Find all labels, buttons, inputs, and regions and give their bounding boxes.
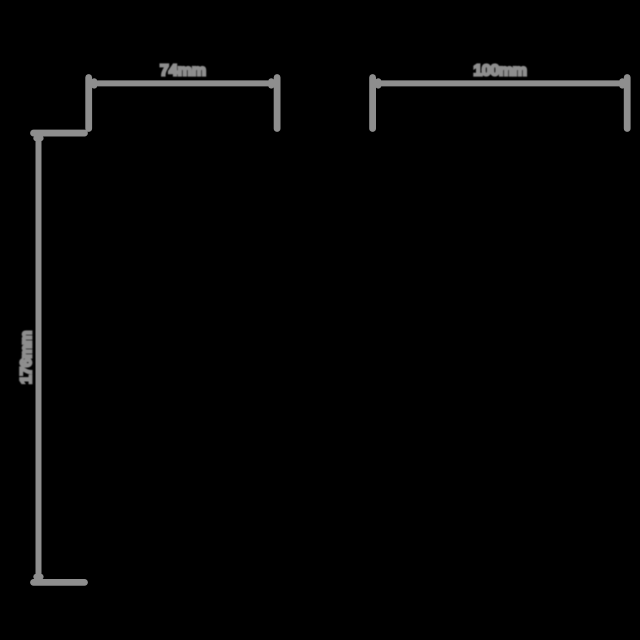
svg-text:100mm: 100mm xyxy=(473,63,526,80)
svg-text:176mm: 176mm xyxy=(18,331,35,384)
svg-text:74mm: 74mm xyxy=(160,63,206,80)
